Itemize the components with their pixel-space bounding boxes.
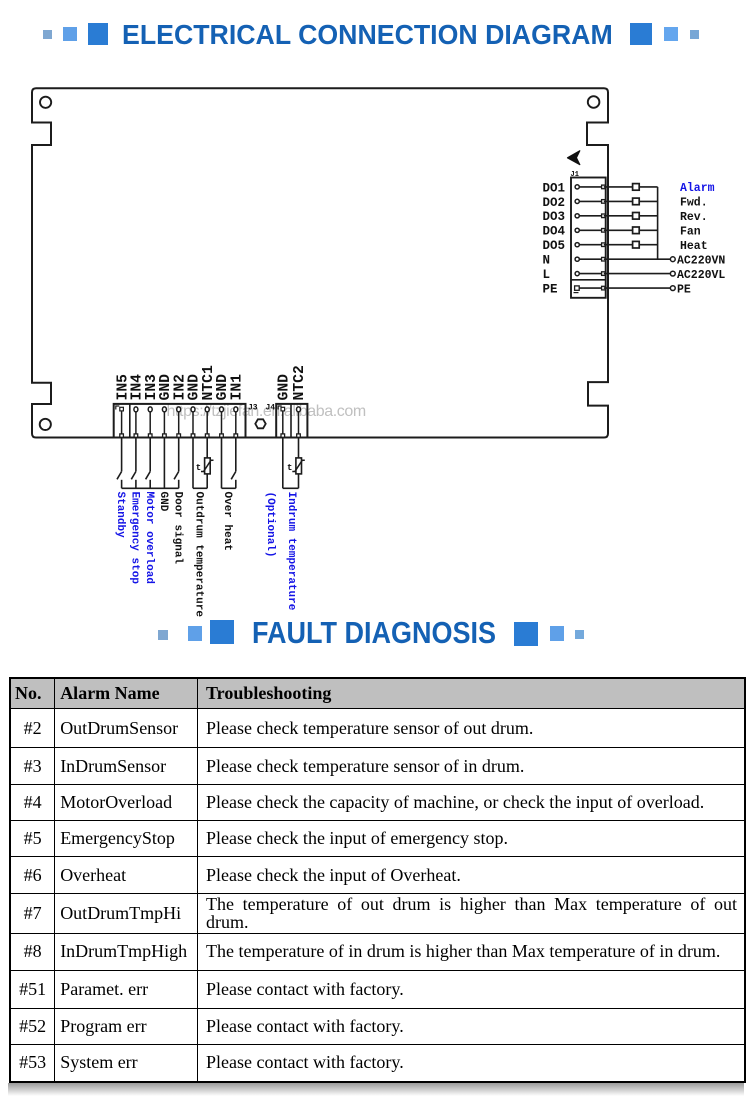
- svg-text:L: L: [543, 268, 551, 282]
- svg-text:Heat: Heat: [680, 240, 708, 253]
- svg-text:DO2: DO2: [543, 196, 566, 210]
- svg-text:N: N: [543, 254, 551, 268]
- svg-text:IN1: IN1: [230, 374, 246, 401]
- svg-text:t: t: [196, 463, 201, 473]
- svg-text:Indrum temperature: Indrum temperature: [285, 492, 297, 611]
- svg-text:AC220VL: AC220VL: [677, 269, 725, 282]
- svg-text:PE: PE: [677, 283, 691, 296]
- svg-text:J3: J3: [248, 404, 258, 413]
- svg-text:GND: GND: [277, 374, 293, 401]
- svg-text:DO5: DO5: [543, 239, 566, 253]
- svg-text:Door signal: Door signal: [171, 492, 183, 565]
- svg-text:(Optional): (Optional): [264, 492, 276, 558]
- svg-text:AC220VN: AC220VN: [677, 254, 725, 267]
- svg-text:J1: J1: [571, 171, 579, 179]
- svg-text:Motor overload: Motor overload: [143, 492, 155, 584]
- svg-text:Rev.: Rev.: [680, 211, 708, 224]
- svg-text:Fan: Fan: [680, 226, 701, 239]
- svg-text:GND: GND: [157, 492, 169, 512]
- svg-text:Standby: Standby: [114, 492, 126, 539]
- svg-text:PE: PE: [543, 283, 558, 297]
- svg-text:DO3: DO3: [543, 210, 566, 224]
- svg-text:Over heat: Over heat: [221, 492, 233, 551]
- svg-text:Fwd.: Fwd.: [680, 197, 708, 210]
- svg-text:J4: J4: [266, 404, 276, 413]
- svg-text:Outdrum temperature: Outdrum temperature: [193, 492, 205, 618]
- svg-text:NTC2: NTC2: [292, 365, 308, 400]
- svg-text:DO1: DO1: [543, 181, 566, 195]
- svg-text:DO4: DO4: [543, 225, 566, 239]
- svg-text:Emergency stop: Emergency stop: [129, 492, 141, 585]
- svg-text:t: t: [287, 463, 292, 473]
- svg-text:Alarm: Alarm: [680, 182, 715, 195]
